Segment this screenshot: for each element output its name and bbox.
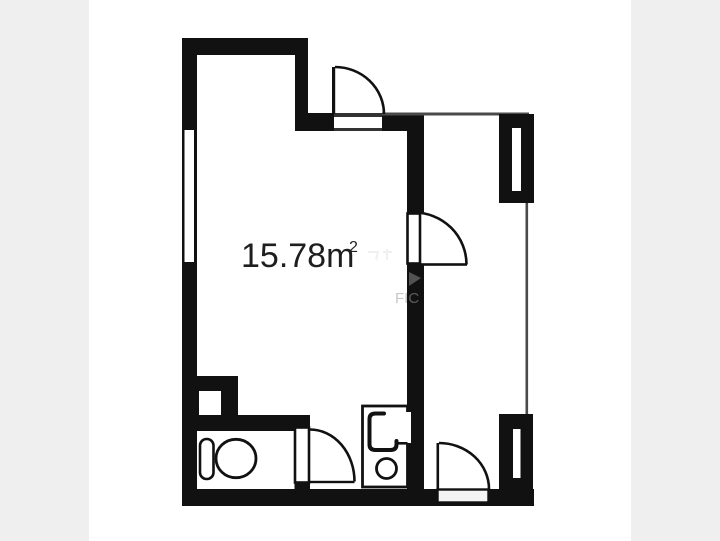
svg-text:2: 2 [349, 239, 358, 256]
svg-text:FIC: FIC [395, 290, 419, 307]
svg-text:15.78m: 15.78m [241, 237, 354, 275]
